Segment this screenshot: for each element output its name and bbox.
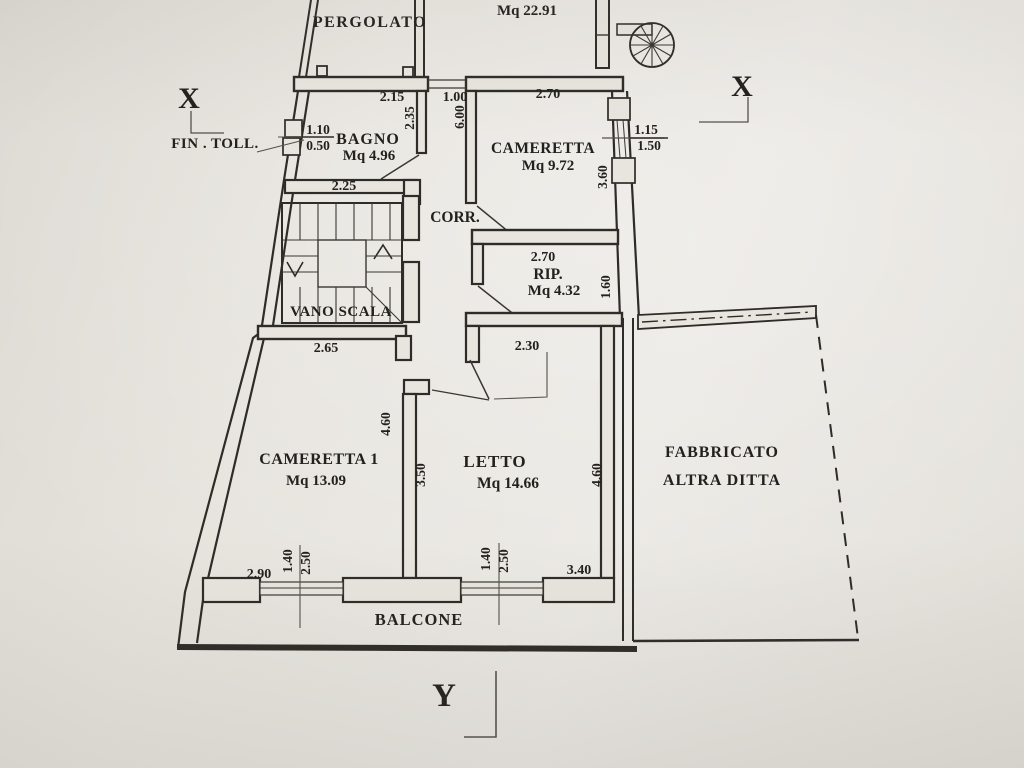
dim-cameretta1-bottom: 2.90 [247,567,272,582]
dim-bagno-bottom: 2.25 [332,179,357,194]
dim-cameretta-top: 2.70 [536,87,561,102]
dim-fin-toll-width: 1.10 [306,122,330,137]
room-label-cameretta1: CAMERETTA 1 [259,451,378,468]
dim-letto-side-right: 4.60 [589,463,604,487]
property-boundary-dashed [816,315,858,638]
dim-cameretta-window-w: 1.15 [634,122,658,137]
dim-bagno-side: 2.35 [402,106,417,130]
room-label-vano-scala: VANO SCALA [290,304,392,320]
label-fabbricato-line1: FABBRICATO [665,444,779,461]
dim-cameretta-window-h: 1.50 [637,138,661,153]
stair-direction-arrow-down [287,262,303,276]
dim-rip-top: 2.70 [531,250,556,265]
dim-cameretta1-top: 2.65 [314,341,339,356]
paper-photo: PERGOLATO Mq 22.91 X X FIN . TOLL. 1.10 … [0,0,1024,768]
dim-bagno-top: 2.15 [380,90,405,105]
cameretta-window [608,98,630,120]
section-marker-x-right: X [731,70,753,103]
room-label-ripostiglio: RIP. [533,266,562,283]
dim-corridor-top: 1.00 [443,90,468,105]
property-boundary-band [638,306,816,329]
dim-cameretta1-window-w: 1.40 [280,549,295,573]
room-label-pergolato: PERGOLATO [313,14,427,31]
room-label-corridoio: CORR. [430,209,480,226]
section-marker-y: Y [432,678,456,714]
dim-rip-side: 1.60 [598,275,613,299]
room-label-balcone: BALCONE [375,610,464,629]
y-bracket [464,671,496,737]
dim-letto-top: 2.30 [515,339,540,354]
dim-cameretta1-side: 4.60 [378,412,393,436]
dim-corridor-side: 6.00 [452,105,467,129]
room-label-letto: LETTO [463,452,526,471]
area-label-cameretta: Mq 9.72 [522,158,575,174]
area-label-letto: Mq 14.66 [477,475,539,492]
dim-letto-side-left: 3.50 [413,463,428,487]
area-label-bagno: Mq 4.96 [343,148,396,164]
rip-door-swing [478,286,516,316]
pergolato-post [403,67,413,77]
room-label-bagno: BAGNO [336,131,400,148]
pergolato-post [317,66,327,76]
label-fabbricato-line2: ALTRA DITTA [663,472,781,489]
dim-cameretta-side: 3.60 [595,165,610,189]
dim-letto-window-h: 2.50 [496,549,511,573]
window-note-fin-toll: FIN . TOLL. [171,136,258,152]
spiral-staircase [617,23,674,67]
dim-fin-toll-height: 0.50 [306,138,330,153]
dim-letto-bottom: 3.40 [567,563,592,578]
dim-letto-window-w: 1.40 [478,547,493,571]
cameretta-window [612,158,635,183]
stair-direction-arrow-up [374,245,392,259]
bagno-window [285,120,302,137]
area-label-terrace: Mq 22.91 [497,3,557,19]
area-label-ripostiglio: Mq 4.32 [528,283,581,299]
dim-cameretta1-window-h: 2.50 [298,551,313,575]
section-marker-x-left: X [178,82,200,115]
area-label-cameretta1: Mq 13.09 [286,473,346,489]
room-label-cameretta: CAMERETTA [491,140,595,157]
bagno-window [283,138,300,155]
floor-plan-drawing: PERGOLATO Mq 22.91 X X FIN . TOLL. 1.10 … [0,0,1024,768]
